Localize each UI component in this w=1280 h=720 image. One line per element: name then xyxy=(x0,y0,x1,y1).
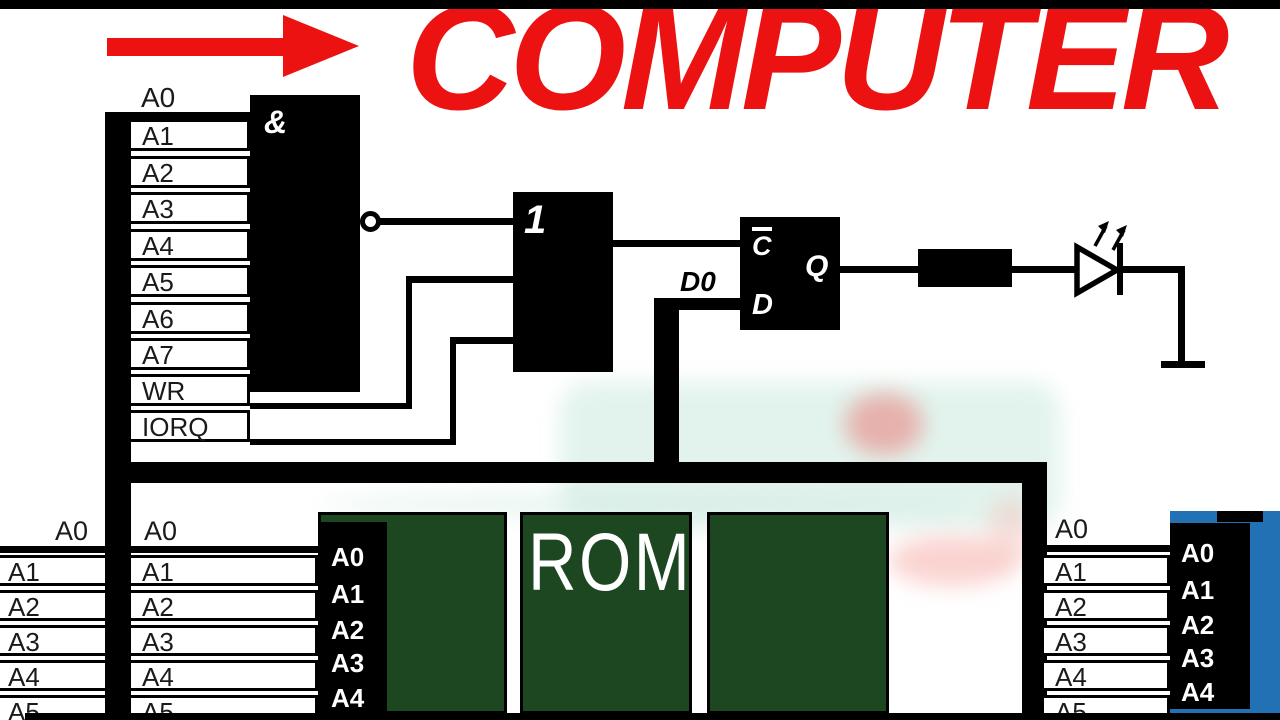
cpu-pin-row: A2 xyxy=(128,156,250,188)
right-chip-top-edge xyxy=(1217,511,1263,522)
wire xyxy=(1047,545,1170,552)
cpu-pin-row: A4 xyxy=(128,229,250,261)
wire xyxy=(1178,266,1185,365)
cpu-pin-row: A5 xyxy=(128,265,250,297)
data-bit-label: D0 xyxy=(680,268,716,296)
right-chip-pin-label: A3 xyxy=(1181,645,1214,671)
flip-flop-clock-label: C xyxy=(752,227,772,260)
flip-flop-output-label: Q xyxy=(805,252,828,282)
rom-pin-label: A4 xyxy=(331,685,364,711)
rom-pin-label: A1 xyxy=(331,581,364,607)
and-gate-label: & xyxy=(264,106,287,138)
bus-horizontal xyxy=(105,462,1047,483)
rom-panel-right xyxy=(707,512,889,714)
wire xyxy=(840,266,920,273)
addr-label: A2 xyxy=(131,593,315,620)
or-gate-label: 1 xyxy=(524,200,546,240)
addr-label: A1 xyxy=(131,558,315,585)
addr-label: A3 xyxy=(0,628,105,655)
rom-pin-label: A0 xyxy=(331,544,364,570)
addr-label: A2 xyxy=(1044,593,1167,620)
addr-label: A1 xyxy=(1044,558,1167,585)
addr-label: A4 xyxy=(131,663,315,690)
bottom-letterbox-bar xyxy=(25,713,1280,720)
addr-row: A4 xyxy=(0,660,108,691)
data-line-d0-vertical xyxy=(654,302,679,464)
cpu-pin-row: A6 xyxy=(128,302,250,334)
data-line-d0-horizontal xyxy=(654,298,740,310)
cpu-pin-label: A2 xyxy=(131,159,247,186)
addr-row: A1 xyxy=(0,555,108,586)
rom-pin-label: A2 xyxy=(331,617,364,643)
addr-label: A0 xyxy=(144,518,177,545)
addr-label: A0 xyxy=(1055,516,1088,543)
rom-pin-label: A3 xyxy=(331,650,364,676)
wire xyxy=(1012,266,1077,273)
cpu-pin-row: WR xyxy=(128,374,250,406)
addr-row: A1 xyxy=(1041,555,1170,586)
right-chip-pin-label: A0 xyxy=(1181,540,1214,566)
cpu-pin-label: A3 xyxy=(131,195,247,222)
cpu-pin-row: A3 xyxy=(128,192,250,224)
cpu-pin-row: A1 xyxy=(128,119,250,151)
wire xyxy=(128,546,318,553)
wire xyxy=(613,240,740,247)
wire xyxy=(250,439,456,445)
flip-flop-data-label: D xyxy=(752,291,773,320)
cpu-pin-label: WR xyxy=(131,377,247,404)
right-chip-pin-label: A1 xyxy=(1181,577,1214,603)
addr-row: A3 xyxy=(0,625,108,656)
watermark-red-blob xyxy=(845,393,923,455)
right-chip-pin-label: A4 xyxy=(1181,679,1214,705)
wire xyxy=(131,112,250,119)
wire xyxy=(250,403,412,409)
wire xyxy=(1122,266,1184,273)
addr-row: A3 xyxy=(128,625,318,656)
cpu-pin-row: IORQ xyxy=(128,410,250,442)
circuit-diagram: COMPUTER A0 A1 A2 A3 A4 A5 A6 A7 WR IORQ… xyxy=(0,0,1280,720)
top-letterbox-bar xyxy=(0,0,1280,9)
addr-label: A1 xyxy=(0,558,105,585)
clock-overbar: C xyxy=(752,227,772,260)
cpu-pin-label: IORQ xyxy=(131,413,247,440)
cpu-pin-label: A7 xyxy=(131,341,247,368)
addr-row: A2 xyxy=(1041,590,1170,621)
addr-row: A2 xyxy=(128,590,318,621)
resistor-icon xyxy=(918,249,1012,287)
wire xyxy=(450,337,513,344)
addr-row: A4 xyxy=(128,660,318,691)
addr-row: A1 xyxy=(128,555,318,586)
cpu-pin-label: A5 xyxy=(131,268,247,295)
cpu-pin-label: A4 xyxy=(131,232,247,259)
addr-label: A2 xyxy=(0,593,105,620)
addr-row: A2 xyxy=(0,590,108,621)
cpu-pin-label: A6 xyxy=(131,305,247,332)
wire xyxy=(406,280,412,409)
addr-row: A4 xyxy=(1041,660,1170,691)
cpu-pin-row: A7 xyxy=(128,338,250,370)
addr-label: A3 xyxy=(131,628,315,655)
addr-label: A4 xyxy=(1044,663,1167,690)
wire xyxy=(406,276,513,283)
cpu-pin-label: A1 xyxy=(131,122,247,149)
right-chip-pin-label: A2 xyxy=(1181,612,1214,638)
addr-label: A3 xyxy=(1044,628,1167,655)
addr-row: A3 xyxy=(1041,625,1170,656)
led-icon xyxy=(1070,213,1195,303)
ground-icon xyxy=(1161,361,1205,368)
addr-label: A0 xyxy=(55,518,88,545)
wire xyxy=(450,341,456,445)
inverter-bubble-icon xyxy=(360,211,381,232)
rom-chip-name: ROM xyxy=(528,522,692,604)
wire xyxy=(0,546,107,553)
page-title: COMPUTER xyxy=(406,0,1224,132)
cpu-pin-label: A0 xyxy=(141,84,175,112)
addr-label: A4 xyxy=(0,663,105,690)
wire xyxy=(380,218,513,225)
